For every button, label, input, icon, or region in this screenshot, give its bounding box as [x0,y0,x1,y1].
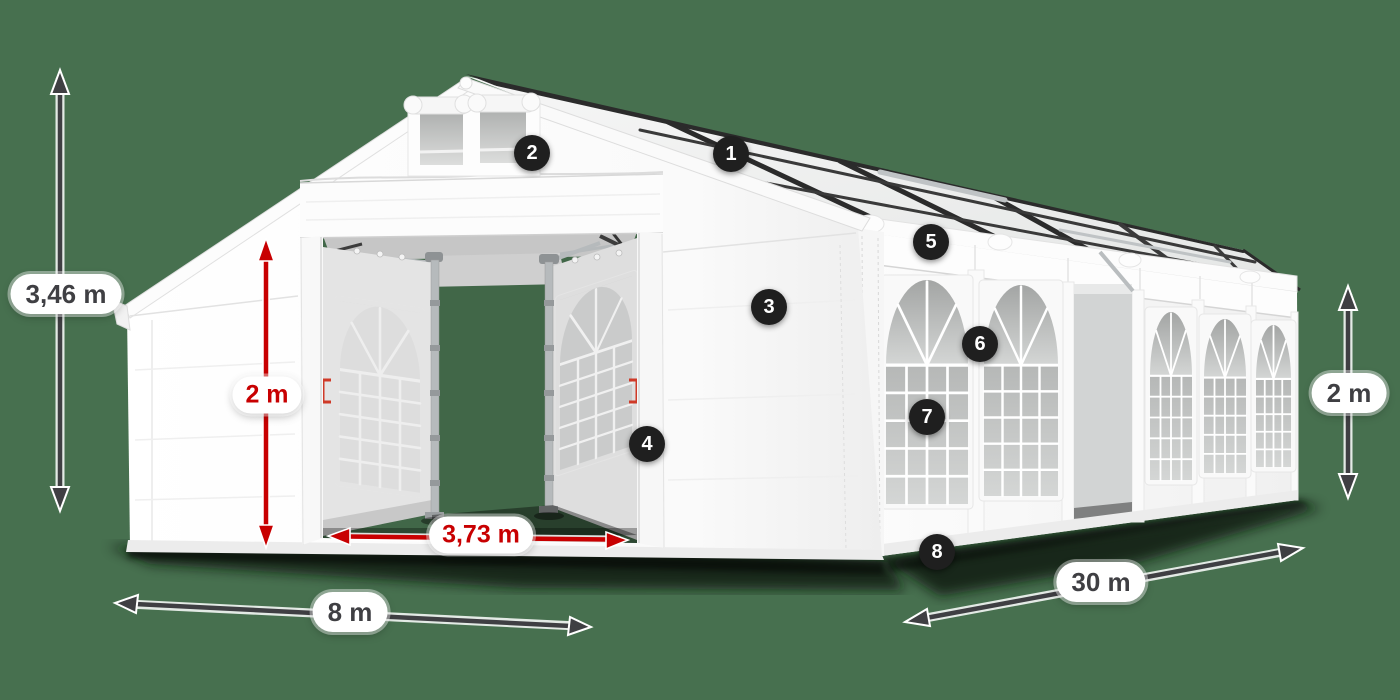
tent-illustration [0,0,1400,700]
callout-badge-5[interactable]: 5 [913,224,949,260]
callout-badge-2[interactable]: 2 [514,135,550,171]
entrance-interior [323,232,637,543]
dimension-label-entrance-height: 2 m [232,377,301,414]
dimension-label-side-wall-height: 2 m [1312,373,1387,413]
right-door-curtain [553,238,637,540]
side-entrance [1074,252,1133,522]
dimension-label-total-height: 3,46 m [11,274,122,314]
callout-badge-1[interactable]: 1 [713,136,749,172]
callout-badge-6[interactable]: 6 [962,326,998,362]
dimension-label-entrance-width: 3,73 m [429,517,533,554]
callout-badge-4[interactable]: 4 [629,426,665,462]
dimension-label-side-length: 30 m [1056,562,1145,602]
dimension-label-front-width: 8 m [313,592,388,632]
callout-badge-7[interactable]: 7 [909,399,945,435]
left-door-curtain [323,247,434,536]
callout-badge-8[interactable]: 8 [919,534,955,570]
callout-badge-3[interactable]: 3 [751,289,787,325]
tent-dimension-diagram: 3,46 m 2 m 3,73 m 8 m 30 m 2 m 1 2 3 4 5… [0,0,1400,700]
